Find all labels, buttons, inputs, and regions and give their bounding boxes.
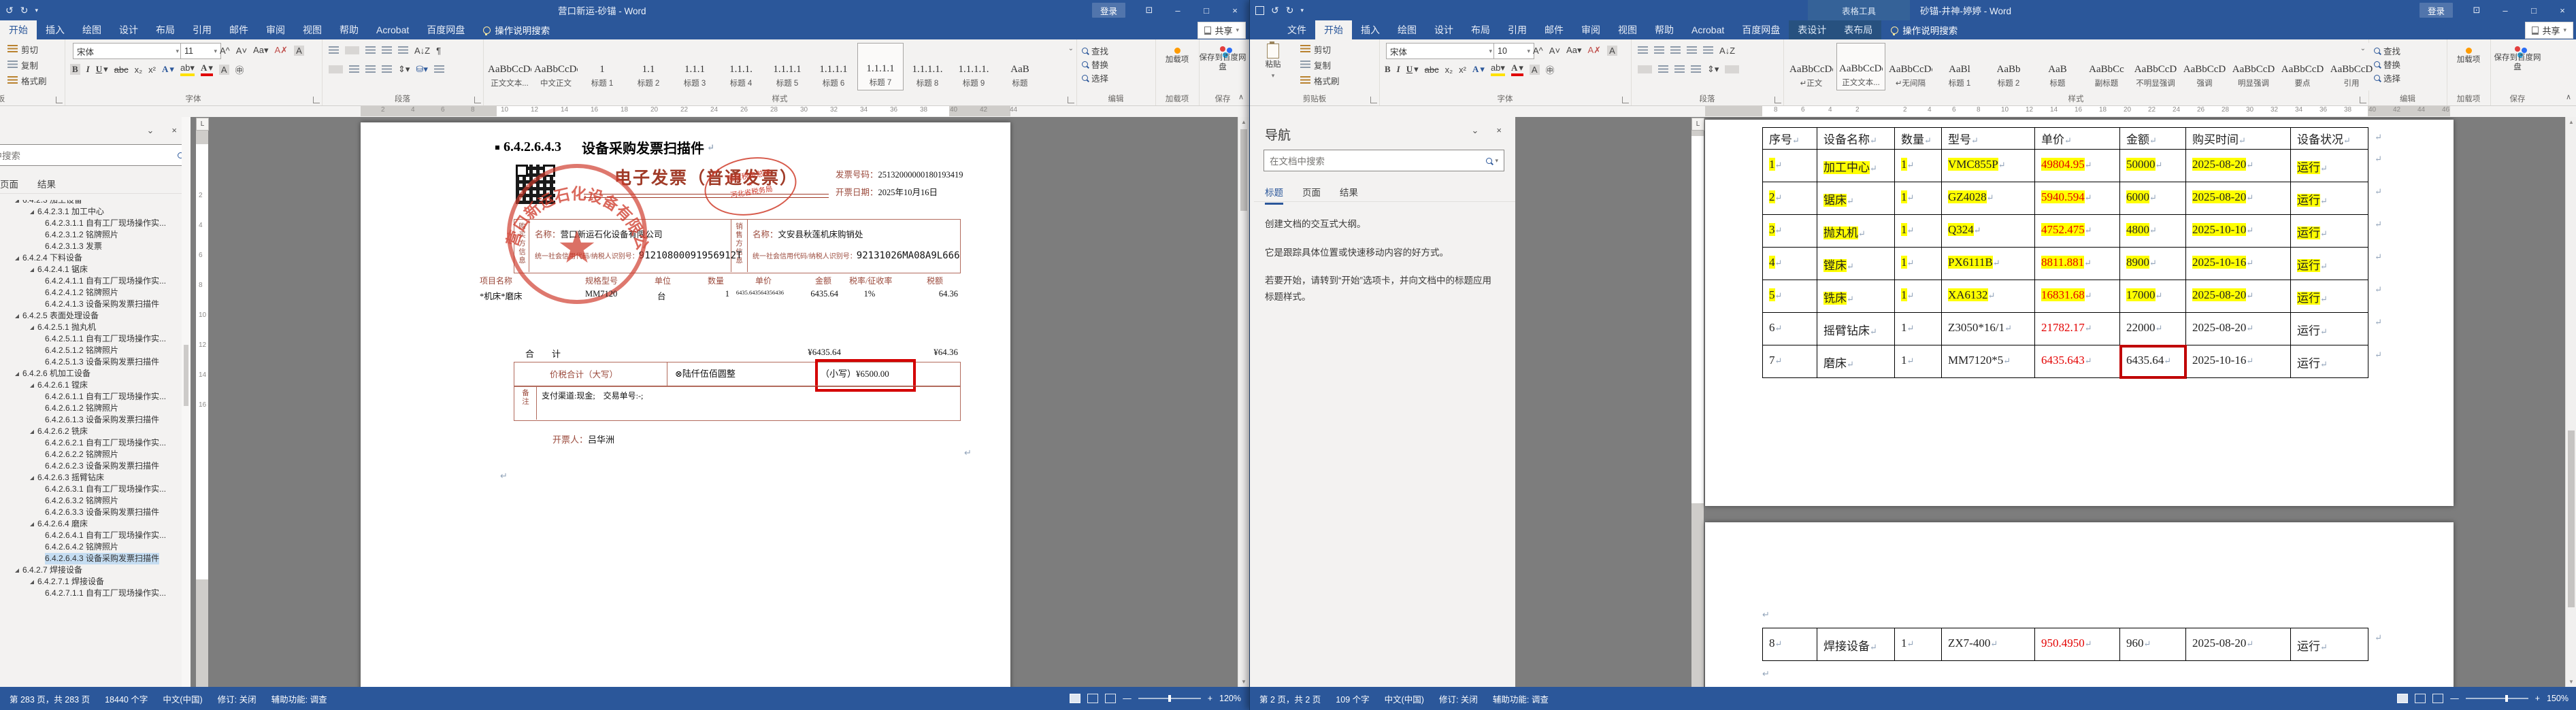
style-chip-标题 7[interactable]: 1.1.1.1标题 7 (857, 43, 904, 90)
table-cell[interactable]: 1↵ (1895, 215, 1942, 248)
tab-插入[interactable]: 插入 (37, 20, 73, 39)
status-第 2 页，共 2 页[interactable]: 第 2 页，共 2 页 (1259, 692, 1321, 705)
font-name-combo[interactable]: 宋体▾ (1386, 43, 1496, 59)
save-to-baidu-button[interactable]: 保存到百度网盘 (2490, 46, 2545, 73)
shading-icon[interactable]: A (219, 65, 229, 75)
zoom-out-icon[interactable]: — (2450, 694, 2459, 703)
increase-indent-icon[interactable] (1703, 46, 1713, 54)
right-page-1[interactable]: 序号↵设备名称↵数量↵型号↵单价↵金额↵购买时间↵设备状况↵↵1↵加工中心↵1↵… (1705, 120, 2454, 506)
tab-stop-selector[interactable]: L (1691, 118, 1704, 131)
style-chip-中文正文[interactable]: AaBbCcDc中文正文 (533, 43, 578, 90)
outline-item[interactable]: 6.4.2.6.4 磨床 (0, 518, 181, 530)
table-cell[interactable]: 运行↵ (2291, 345, 2368, 378)
expand-triangle-icon[interactable] (15, 256, 19, 260)
decrease-indent-icon[interactable] (382, 46, 392, 54)
tab-邮件[interactable]: 邮件 (220, 20, 257, 39)
header-cell-购买时间[interactable]: 购买时间↵ (2186, 128, 2291, 150)
table-cell[interactable]: 抛丸机↵ (1817, 215, 1895, 248)
table-cell[interactable]: Z3050*16/1↵ (1942, 313, 2035, 345)
tab-设计[interactable]: 设计 (1425, 20, 1462, 39)
tab-文件[interactable]: 文件 (1278, 20, 1315, 39)
zoom-in-icon[interactable]: + (1208, 694, 1212, 703)
text-effects-icon[interactable]: A▾ (162, 64, 174, 75)
header-cell-单价[interactable]: 单价↵ (2035, 128, 2120, 150)
close-button[interactable]: × (1221, 0, 1249, 20)
left-titlebar[interactable]: ↺ ↻ ▾ 营口新运-砂锚 - Word 登录 ⊡ – □ × (0, 0, 1249, 20)
outline-item[interactable]: 6.4.2.5 表面处理设备 (0, 310, 181, 322)
web-layout-icon[interactable] (1105, 694, 1116, 703)
read-mode-icon[interactable] (1070, 694, 1080, 703)
line-spacing-icon[interactable]: ⇕▾ (1707, 64, 1719, 75)
shrink-font-icon[interactable]: A˅ (236, 46, 247, 56)
sort-icon[interactable]: A↓Z (1719, 46, 1735, 56)
align-left-icon[interactable] (1638, 65, 1652, 73)
font-size-combo[interactable]: 10▾ (1493, 43, 1534, 59)
number-list-icon[interactable] (345, 46, 359, 54)
underline-icon[interactable]: U▾ (1406, 64, 1419, 75)
circle-char-icon[interactable]: ㊥ (235, 63, 244, 76)
styles-dialog-launcher[interactable] (1068, 97, 1074, 103)
expand-triangle-icon[interactable] (30, 522, 34, 526)
tab-审阅[interactable]: 审阅 (257, 20, 294, 39)
table-cell[interactable]: 铣床↵ (1817, 280, 1895, 313)
table-cell[interactable]: 2↵ (1763, 182, 1817, 215)
minimize-button[interactable]: – (1163, 0, 1192, 20)
nav-pane-options-icon[interactable]: ⌄ (1472, 125, 1479, 136)
nav-pane-scrollbar[interactable] (182, 117, 191, 687)
increase-indent-icon[interactable] (398, 46, 408, 54)
bold-icon[interactable]: B (70, 64, 80, 75)
borders-icon[interactable] (434, 65, 444, 73)
tab-帮助[interactable]: 帮助 (331, 20, 367, 39)
tab-帮助[interactable]: 帮助 (1646, 20, 1683, 39)
print-layout-icon[interactable] (2415, 694, 2426, 703)
nav-pane-close-icon[interactable]: × (171, 125, 177, 136)
table-cell[interactable]: 2025-08-20↵ (2186, 150, 2291, 182)
strikethrough-icon[interactable]: abc (1425, 65, 1439, 75)
table-cell[interactable]: 2025-08-20↵ (2186, 313, 2291, 345)
style-chip-要点[interactable]: AaBbCcD要点 (2279, 43, 2326, 90)
table-cell[interactable]: 1↵ (1895, 313, 1942, 345)
outline-item[interactable]: 6.4.2.6.2.2 铭牌照片 (0, 449, 181, 460)
table-cell[interactable]: 8900↵ (2120, 248, 2186, 280)
highlight-color-icon[interactable]: ab▾ (180, 63, 195, 76)
change-case-icon[interactable]: Aa▾ (1566, 45, 1581, 56)
equipment-table-continued[interactable]: 8↵焊接设备↵1↵ZX7-400↵950.4950↵960↵2025-08-20… (1762, 628, 2368, 661)
sort-icon[interactable]: A↓Z (414, 46, 430, 56)
table-cell[interactable]: 960↵ (2120, 628, 2186, 661)
nav-pane-options-icon[interactable]: ⌄ (147, 125, 154, 136)
tab-设计[interactable]: 设计 (110, 20, 147, 39)
table-cell[interactable]: 7↵ (1763, 345, 1817, 378)
bullet-list-icon[interactable] (329, 46, 339, 54)
table-cell[interactable]: 2025-10-16↵ (2186, 345, 2291, 378)
right-status-bar[interactable]: 第 2 页，共 2 页109 个字中文(中国)修订: 关闭辅助功能: 调查 — … (1250, 687, 2576, 710)
outline-item[interactable]: 6.4.2.4.1.3 设备采购发票扫描件 (0, 299, 181, 310)
font-color-icon[interactable]: A▾ (201, 63, 213, 76)
context-tab-表设计[interactable]: 表设计 (1789, 20, 1835, 39)
style-chip-标题 6[interactable]: 1.1.1.1标题 6 (811, 43, 856, 90)
restore-button[interactable]: □ (2520, 0, 2548, 20)
font-size-buttons[interactable]: A^ A˅ Aa▾ A✗ A (1533, 43, 1617, 58)
status-修订: 关闭[interactable]: 修订: 关闭 (218, 692, 257, 705)
styles-gallery-more-icon[interactable]: ⌄ (1068, 45, 1074, 52)
format-painter-button[interactable]: 格式刷 (2, 73, 47, 87)
web-layout-icon[interactable] (2432, 694, 2443, 703)
outline-item[interactable]: 6.4.2.6.2 铣床 (0, 426, 181, 437)
right-quick-access-toolbar[interactable]: ↺ ↻ ▾ (1255, 0, 1304, 20)
signin-button[interactable]: 登录 (1092, 3, 1125, 18)
table-cell[interactable]: 21782.17↵ (2035, 313, 2120, 345)
borders-icon[interactable] (1725, 65, 1739, 73)
right-page-2[interactable]: ↵ 8↵焊接设备↵1↵ZX7-400↵950.4950↵960↵2025-08-… (1705, 522, 2454, 687)
table-cell[interactable]: XA6132↵ (1942, 280, 2035, 313)
font-size-combo[interactable]: 11▾ (180, 43, 221, 59)
style-chip-正文文本...[interactable]: AaBbCcDdE正文文本... (1836, 43, 1885, 90)
addins-button[interactable]: 加载项 (1155, 48, 1199, 65)
outline-item[interactable]: 6.4.2.3.1.3 发票 (0, 241, 181, 252)
tab-引用[interactable]: 引用 (1499, 20, 1536, 39)
justify-icon[interactable] (1691, 65, 1701, 73)
zoom-level[interactable]: 120% (1219, 694, 1241, 703)
save-icon[interactable] (1255, 6, 1264, 15)
show-marks-icon[interactable]: ¶ (436, 46, 441, 56)
outline-item[interactable]: 6.4.2.7.1 焊接设备 (0, 576, 181, 588)
save-to-baidu-button[interactable]: 保存到百度网盘 (1199, 46, 1246, 73)
table-cell[interactable]: 2025-08-20↵ (2186, 280, 2291, 313)
left-quick-access-toolbar[interactable]: ↺ ↻ ▾ (5, 0, 38, 20)
table-cell[interactable]: 6435.643↵ (2035, 345, 2120, 378)
collapse-ribbon-icon[interactable]: ∧ (1238, 92, 1244, 101)
justify-icon[interactable] (382, 65, 392, 73)
cut-button[interactable]: 剪切 (2, 42, 38, 56)
multilevel-list-icon[interactable] (365, 46, 376, 54)
qat-customize-icon[interactable]: ▾ (35, 7, 38, 14)
table-cell[interactable]: 镗床↵ (1817, 248, 1895, 280)
copy-button[interactable]: 复制 (1295, 58, 1331, 71)
right-document-area[interactable]: L 序号↵设备名称↵数量↵型号↵单价↵金额↵购买时间↵设备状况↵↵1↵加工中心↵… (1515, 117, 2566, 687)
header-cell-序号[interactable]: 序号↵ (1763, 128, 1817, 150)
tab-引用[interactable]: 引用 (184, 20, 220, 39)
outline-item[interactable]: 6.4.2.5.1.1 自有工厂现场操作实... (0, 333, 181, 345)
table-cell[interactable]: 运行↵ (2291, 248, 2368, 280)
status-18440 个字[interactable]: 18440 个字 (105, 692, 148, 705)
status-辅助功能: 调查[interactable]: 辅助功能: 调查 (271, 692, 327, 705)
outline-item[interactable]: 6.4.2.3 加工设备 (0, 200, 181, 206)
expand-triangle-icon[interactable] (30, 476, 34, 480)
outline-item[interactable]: 6.4.2.4.1 锯床 (0, 264, 181, 275)
tab-视图[interactable]: 视图 (1609, 20, 1646, 39)
expand-triangle-icon[interactable] (30, 580, 34, 584)
signin-button[interactable]: 登录 (2420, 3, 2453, 18)
tab-百度网盘[interactable]: 百度网盘 (1733, 20, 1789, 39)
right-horizontal-ruler[interactable]: 8642246810121416182022242628303234363840… (1515, 105, 2566, 117)
style-chip-标题 2[interactable]: 1.1标题 2 (626, 43, 671, 90)
tab-布局[interactable]: 布局 (147, 20, 184, 39)
table-cell[interactable]: 50000↵ (2120, 150, 2186, 182)
table-cell[interactable]: 49804.95↵ (2035, 150, 2120, 182)
align-buttons[interactable]: ⇕▾ (1638, 62, 1739, 77)
tab-百度网盘[interactable]: 百度网盘 (418, 20, 474, 39)
style-chip-标题 4[interactable]: 1.1.1.标题 4 (719, 43, 763, 90)
tab-邮件[interactable]: 邮件 (1536, 20, 1572, 39)
editing-选择[interactable]: 选择 (1076, 71, 1155, 84)
read-mode-icon[interactable] (2397, 694, 2408, 703)
multilevel-list-icon[interactable] (1670, 46, 1681, 54)
expand-triangle-icon[interactable] (15, 372, 19, 376)
outline-item[interactable]: 6.4.2.5.1 抛丸机 (0, 322, 181, 333)
clipboard-dialog-launcher[interactable] (56, 97, 63, 103)
line-spacing-icon[interactable]: ⇕▾ (398, 64, 410, 75)
table-cell[interactable]: 运行↵ (2291, 313, 2368, 345)
table-cell[interactable]: 6435.64↵ (2120, 345, 2186, 378)
clipboard-dialog-launcher[interactable] (1370, 97, 1377, 103)
editing-选择[interactable]: 选择 (2368, 71, 2447, 84)
font-dialog-launcher[interactable] (313, 97, 320, 103)
tab-Acrobat[interactable]: Acrobat (1683, 20, 1733, 39)
table-cell[interactable]: 8811.881↵ (2035, 248, 2120, 280)
table-cell[interactable]: 1↵ (1895, 248, 1942, 280)
tab-stop-selector[interactable]: L (196, 118, 209, 131)
zoom-slider[interactable] (2466, 698, 2528, 699)
underline-icon[interactable]: U▾ (96, 64, 108, 75)
table-cell[interactable]: 2025-10-16↵ (2186, 248, 2291, 280)
decrease-indent-icon[interactable] (1687, 46, 1697, 54)
outline-item[interactable]: 6.4.2.4.1.1 自有工厂现场操作实... (0, 275, 181, 287)
table-cell[interactable]: 摇臂钻床↵ (1817, 313, 1895, 345)
font-name-combo[interactable]: 宋体▾ (73, 43, 183, 59)
header-cell-设备名称[interactable]: 设备名称↵ (1817, 128, 1895, 150)
zoom-slider[interactable] (1138, 698, 1201, 699)
align-buttons[interactable]: ⇕▾ ⛁▾ (329, 62, 444, 77)
align-right-icon[interactable] (1674, 65, 1685, 73)
left-document-area[interactable]: L 246810121416 6.4.2.6.4.3 设备采购发票扫描件 ↵ 电… (191, 117, 1238, 687)
print-layout-icon[interactable] (1087, 694, 1098, 703)
editing-查找[interactable]: 查找 (2368, 44, 2447, 57)
table-cell[interactable]: 运行↵ (2291, 280, 2368, 313)
clear-format-icon[interactable]: A✗ (274, 45, 288, 56)
equipment-table[interactable]: 序号↵设备名称↵数量↵型号↵单价↵金额↵购买时间↵设备状况↵↵1↵加工中心↵1↵… (1762, 127, 2368, 378)
align-left-icon[interactable] (329, 65, 343, 73)
nav-search-input[interactable]: 在文档中搜索 ▾ (1264, 150, 1504, 171)
table-cell[interactable]: 2025-10-10↵ (2186, 215, 2291, 248)
table-cell[interactable]: 1↵ (1895, 280, 1942, 313)
tab-视图[interactable]: 视图 (294, 20, 331, 39)
style-chip-标题 8[interactable]: 1.1.1.1.标题 8 (905, 43, 950, 90)
editing-替换[interactable]: 替换 (2368, 57, 2447, 71)
zoom-out-icon[interactable]: — (1123, 694, 1132, 703)
table-cell[interactable]: VMC855P↵ (1942, 150, 2035, 182)
style-chip-不明显强调[interactable]: AaBbCcD不明显强调 (2132, 43, 2179, 90)
expand-triangle-icon[interactable] (30, 326, 34, 330)
tab-开始[interactable]: 开始 (0, 20, 37, 39)
right-vertical-scrollbar[interactable]: ▲▼ (2565, 117, 2576, 687)
outline-item[interactable]: 6.4.2.5.1.3 设备采购发票扫描件 (0, 356, 181, 368)
cut-button[interactable]: 剪切 (1295, 42, 1331, 56)
table-cell[interactable]: 1↵ (1895, 150, 1942, 182)
table-cell[interactable]: GZ4028↵ (1942, 182, 2035, 215)
circle-char-icon[interactable]: ㊥ (1546, 63, 1555, 76)
style-chip-标题[interactable]: AaB标题 (2034, 43, 2081, 90)
tab-绘图[interactable]: 绘图 (1389, 20, 1425, 39)
shading-icon[interactable]: A (1530, 65, 1540, 75)
table-cell[interactable]: 1↵ (1895, 182, 1942, 215)
ribbon-display-options-icon[interactable]: ⊡ (2462, 0, 2491, 20)
outline-item[interactable]: 6.4.2.6.2.1 自有工厂现场操作实... (0, 437, 181, 449)
minimize-button[interactable]: – (2491, 0, 2520, 20)
tab-绘图[interactable]: 绘图 (73, 20, 110, 39)
header-cell-设备状况[interactable]: 设备状况↵ (2291, 128, 2368, 150)
table-cell[interactable]: 运行↵ (2291, 628, 2368, 661)
undo-icon[interactable]: ↺ (1271, 5, 1279, 16)
table-cell[interactable]: 3↵ (1763, 215, 1817, 248)
styles-gallery-more-icon[interactable]: ⌄ (2360, 45, 2366, 52)
change-case-icon[interactable]: Aa▾ (253, 45, 268, 56)
right-vertical-ruler[interactable] (1691, 131, 1704, 687)
subscript-icon[interactable]: x₂ (1445, 65, 1453, 75)
outline-item[interactable]: 6.4.2.6.3 摇臂钻床 (0, 472, 181, 484)
table-cell[interactable]: PX6111B↵ (1942, 248, 2035, 280)
table-cell[interactable]: 4752.475↵ (2035, 215, 2120, 248)
outline-item[interactable]: 6.4.2.6.3.2 铭牌照片 (0, 495, 181, 507)
table-cell[interactable]: 2025-08-20↵ (2186, 628, 2291, 661)
table-cell[interactable]: 950.4950↵ (2035, 628, 2120, 661)
table-cell[interactable]: Q324↵ (1942, 215, 2035, 248)
table-cell[interactable]: 磨床↵ (1817, 345, 1895, 378)
table-cell[interactable]: 运行↵ (2291, 150, 2368, 182)
expand-triangle-icon[interactable] (30, 430, 34, 434)
outline-item[interactable]: 6.4.2.6.2.3 设备采购发票扫描件 (0, 460, 181, 472)
table-cell[interactable]: 4800↵ (2120, 215, 2186, 248)
editing-查找[interactable]: 查找 (1076, 44, 1155, 57)
left-status-bar[interactable]: 第 283 页，共 283 页18440 个字中文(中国)修订: 关闭辅助功能:… (0, 687, 1249, 710)
table-cell[interactable]: 1↵ (1895, 345, 1942, 378)
table-cell[interactable]: 4↵ (1763, 248, 1817, 280)
italic-icon[interactable]: I (1397, 64, 1400, 75)
table-cell[interactable]: 焊接设备↵ (1817, 628, 1895, 661)
format-painter-button[interactable]: 格式刷 (1295, 73, 1340, 87)
header-cell-数量[interactable]: 数量↵ (1895, 128, 1942, 150)
tell-me-box[interactable]: 操作说明搜索 (483, 20, 550, 39)
table-cell[interactable]: 16831.68↵ (2035, 280, 2120, 313)
paragraph-dialog-launcher[interactable] (474, 97, 481, 103)
style-chip-标题 2[interactable]: AaBb标题 2 (1985, 43, 2032, 90)
outline-item[interactable]: 6.4.2.6 机加工设备 (0, 368, 181, 379)
style-chip-标题 1[interactable]: 1标题 1 (580, 43, 625, 90)
outline-item[interactable]: 6.4.2.4.1.2 铭牌照片 (0, 287, 181, 299)
tab-Acrobat[interactable]: Acrobat (367, 20, 418, 39)
expand-triangle-icon[interactable] (15, 569, 19, 573)
redo-icon[interactable]: ↻ (20, 5, 29, 16)
outline-item[interactable]: 6.4.2.6.1.3 设备采购发票扫描件 (0, 414, 181, 426)
left-page[interactable]: 6.4.2.6.4.3 设备采购发票扫描件 ↵ 电子发票（普通发票） 国家税务总… (361, 122, 1010, 687)
table-cell[interactable]: 加工中心↵ (1817, 150, 1895, 182)
status-中文(中国)[interactable]: 中文(中国) (163, 692, 202, 705)
align-right-icon[interactable] (365, 65, 376, 73)
outline-item[interactable]: 6.4.2.3.1.1 自有工厂现场操作实... (0, 218, 181, 229)
outline-item[interactable]: 6.4.2.7 焊接设备 (0, 564, 181, 576)
list-buttons[interactable]: A↓Z (1638, 43, 1735, 58)
clear-format-icon[interactable]: A✗ (1587, 45, 1601, 56)
context-tab-表布局[interactable]: 表布局 (1835, 20, 1881, 39)
outline-item[interactable]: 6.4.2.6.3.1 自有工厂现场操作实... (0, 484, 181, 495)
addins-button[interactable]: 加载项 (2447, 48, 2490, 65)
nav-search-input[interactable]: 在文档中搜索 ▾ (0, 144, 196, 166)
table-cell[interactable]: 1↵ (1895, 628, 1942, 661)
bold-icon[interactable]: B (1385, 64, 1391, 75)
tab-开始[interactable]: 开始 (1315, 20, 1352, 39)
zoom-in-icon[interactable]: + (2535, 694, 2540, 703)
undo-icon[interactable]: ↺ (5, 5, 14, 16)
restore-button[interactable]: □ (1192, 0, 1221, 20)
style-chip-标题[interactable]: AaB标题 (997, 43, 1042, 90)
style-chip-↵正文[interactable]: AaBbCcDc↵正文 (1787, 43, 1835, 90)
tab-布局[interactable]: 布局 (1462, 20, 1499, 39)
list-buttons[interactable]: A↓Z ¶ (329, 43, 441, 58)
nav-pane-close-icon[interactable]: × (1496, 125, 1502, 136)
left-vertical-scrollbar[interactable]: ▲▼ (1238, 117, 1249, 687)
collapse-ribbon-icon[interactable]: ∧ (2566, 92, 2571, 101)
table-cell[interactable]: 6000↵ (2120, 182, 2186, 215)
expand-triangle-icon[interactable] (30, 384, 34, 388)
outline-item[interactable]: 6.4.2.5.1.2 铭牌照片 (0, 345, 181, 356)
status-第 283 页，共 283 页[interactable]: 第 283 页，共 283 页 (10, 692, 90, 705)
table-cell[interactable]: MM7120*5↵ (1942, 345, 2035, 378)
outline-item[interactable]: 6.4.2.3.1 加工中心 (0, 206, 181, 218)
style-chip-强调[interactable]: AaBbCcD强调 (2181, 43, 2228, 90)
table-cell[interactable]: 运行↵ (2291, 182, 2368, 215)
table-cell[interactable]: 5940.594↵ (2035, 182, 2120, 215)
outline-item[interactable]: 6.4.2.4 下料设备 (0, 252, 181, 264)
grow-font-icon[interactable]: A^ (220, 46, 230, 56)
paste-button[interactable]: 粘贴▾ (1255, 44, 1291, 80)
char-border-icon[interactable]: A (294, 46, 304, 56)
strikethrough-icon[interactable]: abc (114, 65, 129, 75)
redo-icon[interactable]: ↻ (1286, 5, 1294, 16)
font-color-icon[interactable]: A▾ (1511, 63, 1523, 76)
tell-me-box[interactable]: 操作说明搜索 (1891, 20, 1958, 39)
style-chip-正文文本...[interactable]: AaBbCcDdE正文文本... (487, 43, 532, 90)
copy-button[interactable]: 复制 (2, 58, 38, 71)
outline-item[interactable]: 6.4.2.6.1 镗床 (0, 379, 181, 391)
outline-item[interactable]: 6.4.2.3.1.2 铭牌照片 (0, 229, 181, 241)
align-center-icon[interactable] (349, 65, 359, 73)
outline-item[interactable]: 6.4.2.6.4.3 设备采购发票扫描件 (0, 553, 181, 564)
table-cell[interactable]: 2025-08-20↵ (2186, 182, 2291, 215)
tab-插入[interactable]: 插入 (1352, 20, 1389, 39)
status-修订: 关闭[interactable]: 修订: 关闭 (1439, 692, 1478, 705)
font-style-buttons[interactable]: B I U▾ abc x₂ x² A▾ ab▾ A▾ A ㊥ (70, 62, 244, 77)
header-cell-型号[interactable]: 型号↵ (1942, 128, 2035, 150)
close-button[interactable]: × (2548, 0, 2576, 20)
expand-triangle-icon[interactable] (30, 210, 34, 214)
highlight-color-icon[interactable]: ab▾ (1491, 63, 1505, 76)
tab-审阅[interactable]: 审阅 (1572, 20, 1609, 39)
outline-item[interactable]: 6.4.2.6.4.2 铭牌照片 (0, 541, 181, 553)
table-cell[interactable]: 17000↵ (2120, 280, 2186, 313)
table-cell[interactable]: 1↵ (1763, 150, 1817, 182)
styles-dialog-launcher[interactable] (2360, 97, 2366, 103)
font-size-buttons[interactable]: A^ A˅ Aa▾ A✗ A (220, 43, 304, 58)
outline-item[interactable]: 6.4.2.6.4.1 自有工厂现场操作实... (0, 530, 181, 541)
superscript-icon[interactable]: x² (1459, 65, 1466, 75)
style-chip-↵无间隔[interactable]: AaBbCcDc↵无间隔 (1887, 43, 1934, 90)
table-cell[interactable]: 运行↵ (2291, 215, 2368, 248)
outline-item[interactable]: 6.4.2.7.1.1 自有工厂现场操作实... (0, 588, 181, 599)
shading-fill-icon[interactable]: ⛁▾ (416, 64, 427, 75)
grow-font-icon[interactable]: A^ (1533, 46, 1543, 56)
font-dialog-launcher[interactable] (1622, 97, 1629, 103)
